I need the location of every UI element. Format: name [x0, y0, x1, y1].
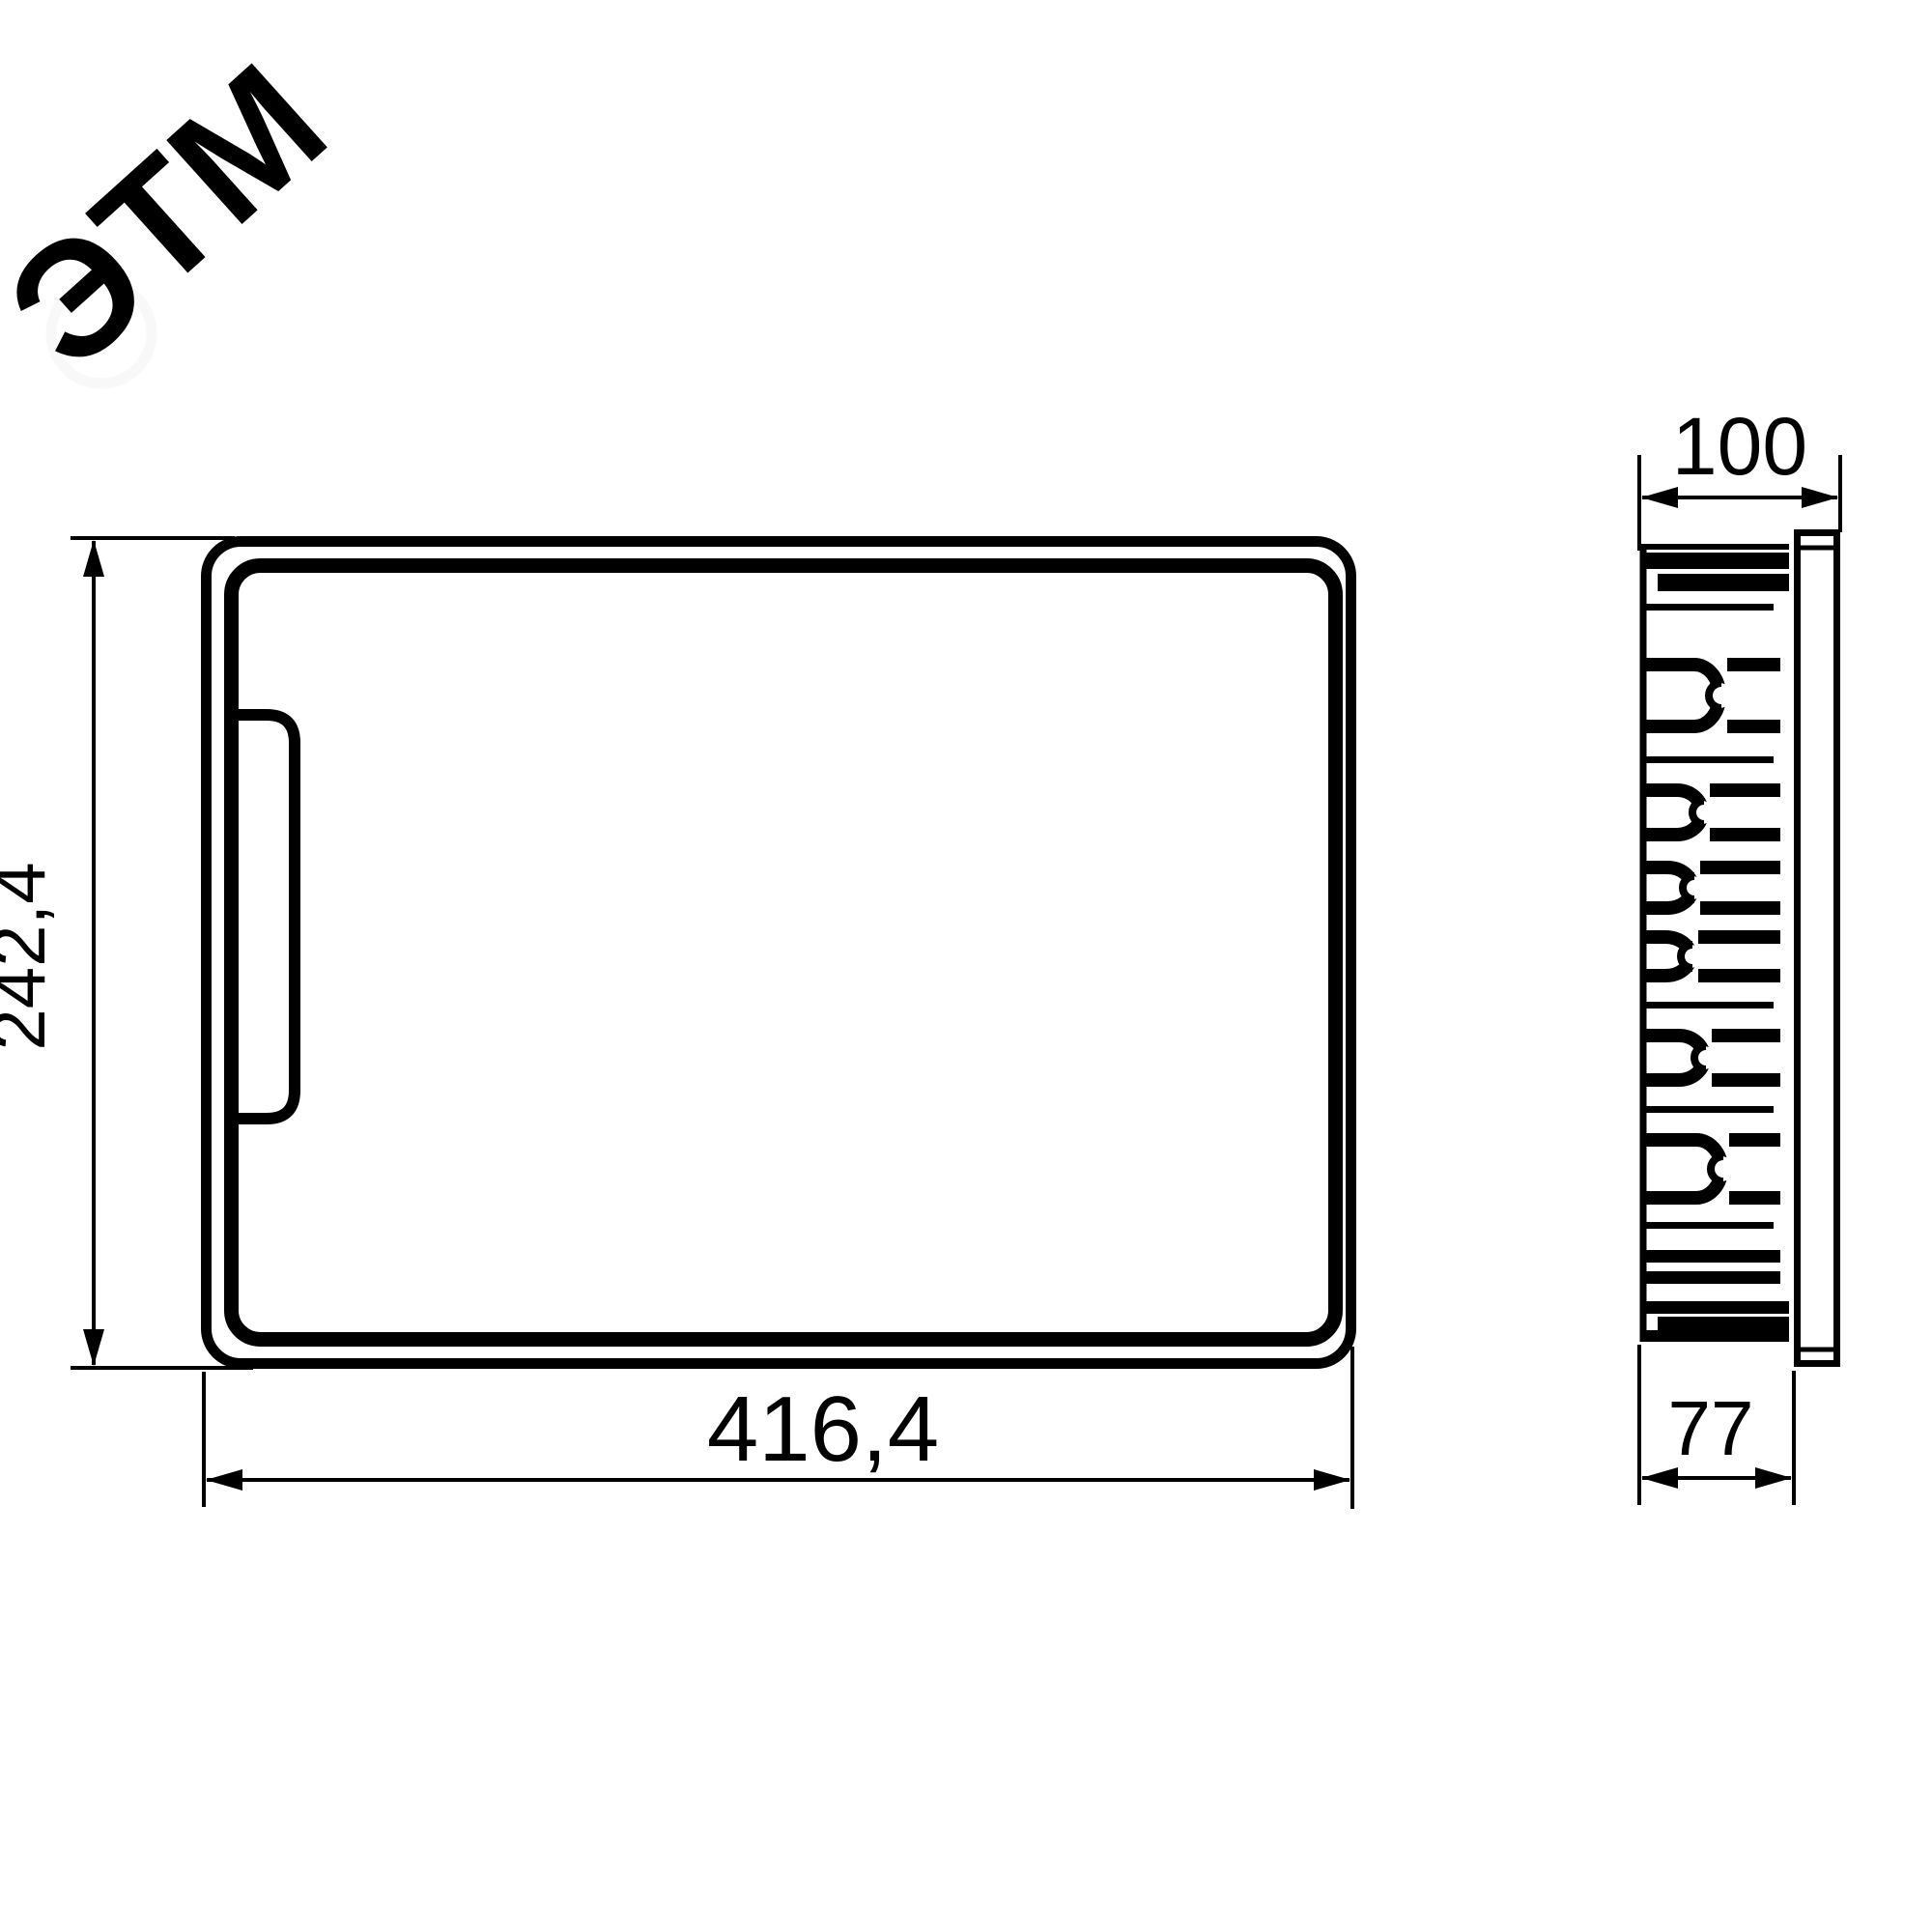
front-outer-frame [207, 542, 1351, 1364]
arrowhead-right-icon [1314, 1469, 1350, 1491]
dimension-label-height: 242,4 [0, 862, 61, 1050]
dimension-width: 416,4 [204, 1347, 1352, 1509]
front-view [207, 542, 1351, 1364]
arrowhead-right-icon [1755, 1467, 1792, 1489]
arrowhead-left-icon [206, 1469, 242, 1491]
dimension-label-depth-total: 100 [1672, 401, 1807, 492]
mounting-claw [1640, 861, 1780, 915]
door-handle [239, 715, 295, 1119]
technical-drawing-canvas: ЭТМ [0, 0, 1932, 1932]
dimension-label-depth-body: 77 [1668, 1385, 1754, 1471]
mounting-claw [1640, 930, 1780, 982]
mounting-claw [1640, 1133, 1780, 1205]
dimension-height: 242,4 [0, 538, 253, 1368]
dimension-depth-total: 100 [1639, 401, 1840, 551]
watermark-text: ЭТМ [0, 30, 359, 403]
dimension-depth-body: 77 [1639, 1345, 1794, 1505]
side-mounting-claws [1640, 658, 1780, 1205]
side-front-panel [1798, 533, 1837, 1364]
mounting-claw [1640, 658, 1780, 733]
dimension-drawing: ЭТМ [0, 0, 1932, 1932]
dimension-label-width: 416,4 [707, 1378, 939, 1481]
front-door-panel [232, 566, 1336, 1340]
watermark: ЭТМ [0, 30, 359, 403]
arrowhead-up-icon [83, 540, 104, 577]
side-bottom-rim [1640, 1301, 1789, 1342]
arrowhead-down-icon [83, 1329, 104, 1366]
mounting-claw [1640, 783, 1780, 841]
side-top-rim [1640, 544, 1789, 591]
side-view [1640, 533, 1839, 1364]
mounting-claw [1640, 1029, 1780, 1087]
